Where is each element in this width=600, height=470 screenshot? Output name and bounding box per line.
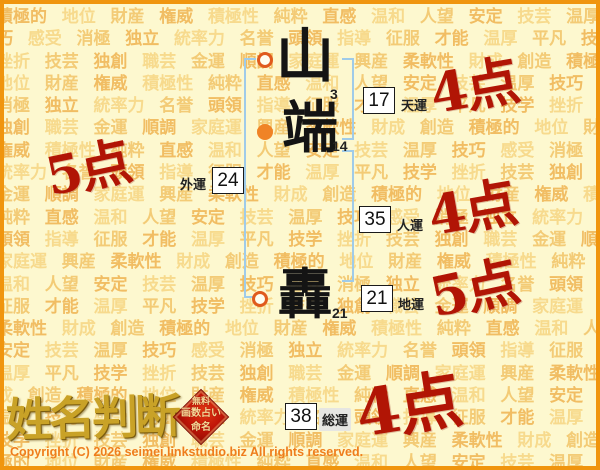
stamp-line-1: 無料: [172, 395, 230, 407]
jinun-bracket: [342, 150, 354, 282]
surname-char-2: 端: [282, 100, 338, 156]
chiun-value-box: 21: [361, 285, 393, 312]
surname-char-1: 山: [276, 28, 334, 86]
tenun-label: 天運: [401, 95, 427, 114]
char1-marker-icon: [257, 52, 273, 68]
gaiun-value-box: 24: [212, 167, 244, 194]
site-logo[interactable]: 姓名判断: [5, 380, 179, 450]
given-char-1-strokes: 21: [332, 305, 348, 321]
jinun-label: 人運: [397, 215, 423, 234]
chiun-score: 5点: [425, 253, 522, 324]
tenun-bracket: [342, 58, 354, 140]
gaiun-bracket: [244, 58, 256, 298]
stamp-line-3: 命名: [172, 421, 230, 435]
tenun-score: 4点: [426, 53, 522, 121]
chiun-label: 地運: [398, 294, 424, 313]
free-naming-stamp[interactable]: 無料 画数占い 命名: [172, 388, 230, 446]
soun-label: 総運: [319, 408, 351, 431]
surname-char-2-strokes: 14: [332, 138, 348, 154]
stamp-text: 無料 画数占い 命名: [172, 395, 230, 434]
gaiun-score: 5点: [42, 136, 135, 204]
soun-score: 4点: [352, 368, 465, 448]
gaiun-label: 外運: [180, 174, 206, 193]
tenun-value-box: 17: [363, 87, 395, 114]
jinun-score: 4点: [424, 175, 520, 243]
given-char-1: 轟: [278, 268, 332, 322]
copyright-text: Copyright (C) 2026 seimei.linkstudio.biz…: [10, 445, 363, 459]
char3-marker-icon: [252, 291, 268, 307]
jinun-value-box: 35: [359, 206, 391, 233]
soun-value-box: 38: [285, 403, 317, 430]
stamp-line-2: 画数占い: [172, 407, 230, 421]
seimei-result-page: 積極的 地位 財産 権威 積極性 純粋 直感 温和 人望 安定 技芸 温厚 技巧…: [0, 0, 600, 470]
char2-marker-icon: [257, 124, 273, 140]
